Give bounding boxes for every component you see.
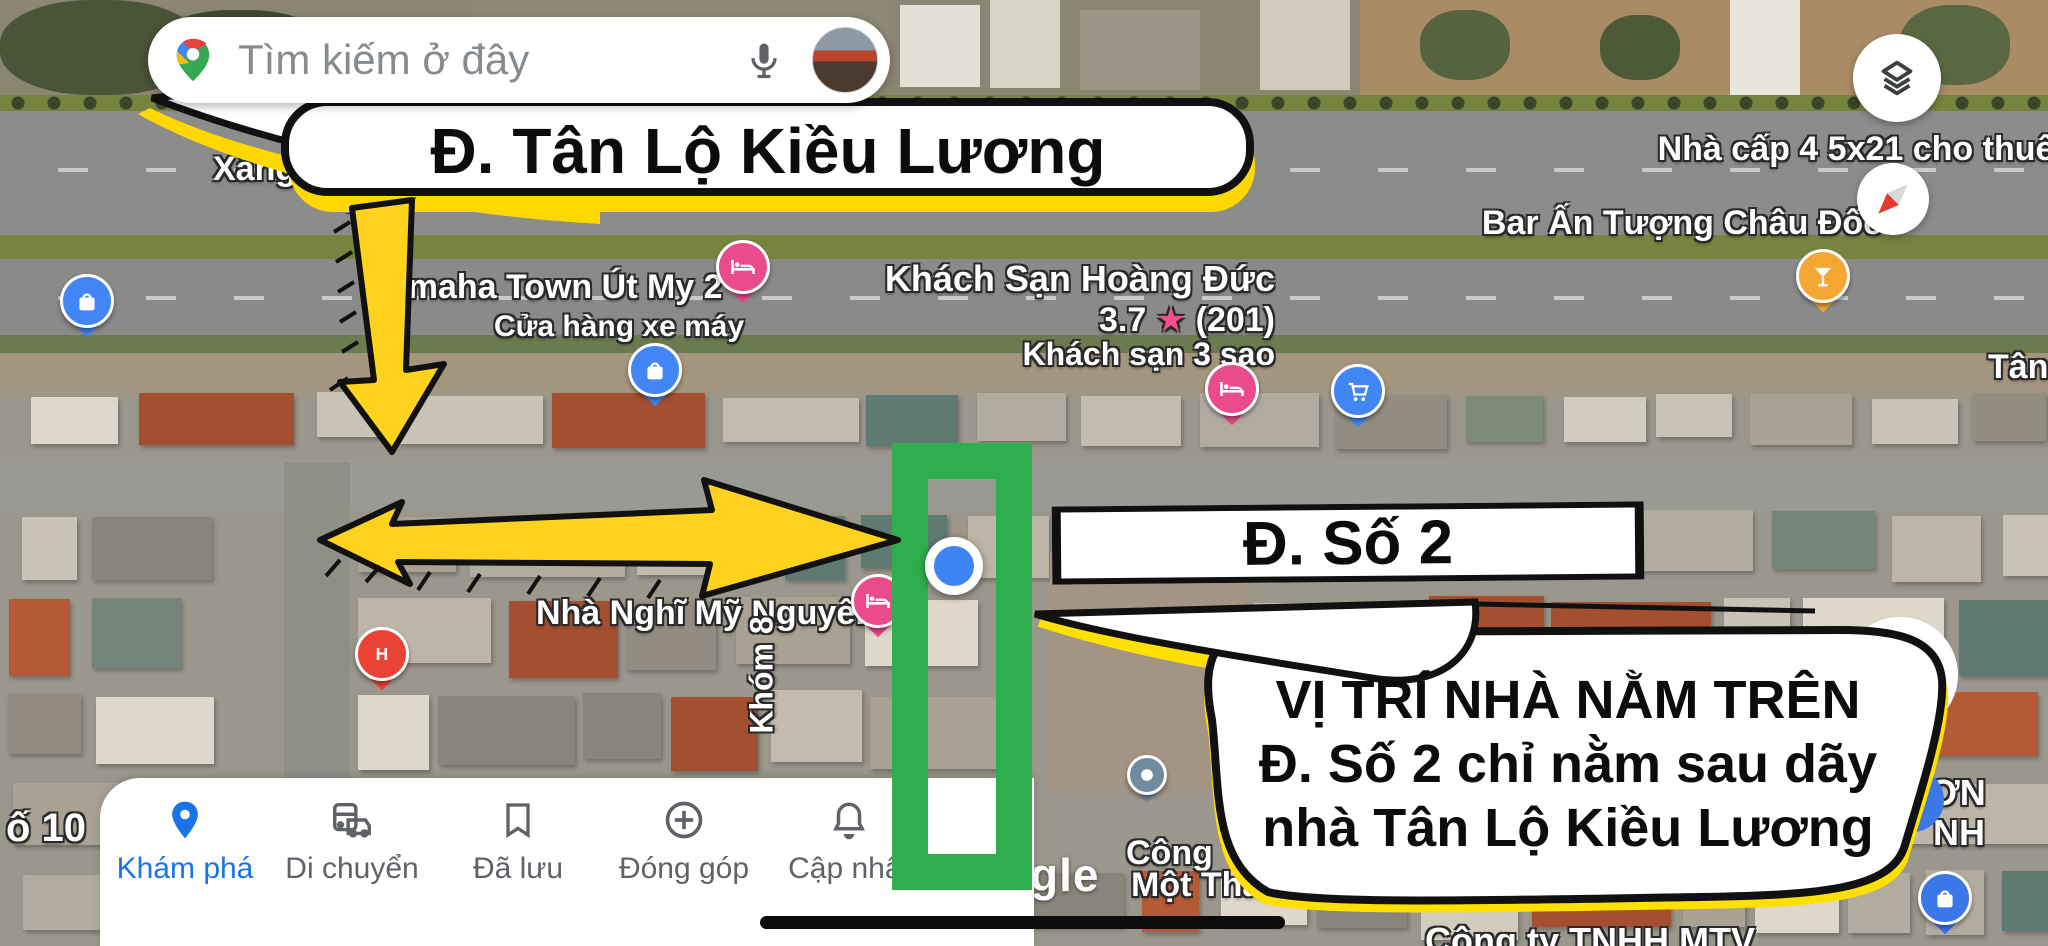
map-building [139, 393, 294, 445]
rating-value: 3.7 [1099, 301, 1146, 339]
shopping-bag-pin[interactable] [628, 343, 682, 409]
layers-icon [1874, 55, 1920, 101]
map-trees [1600, 15, 1680, 80]
map-building [1872, 399, 1958, 444]
map-building [96, 697, 214, 764]
map-label-house-rent[interactable]: Nhà cấp 4 5x21 cho thuê [1658, 130, 2048, 169]
map-building [1564, 397, 1646, 442]
shopping-bag-pin[interactable] [60, 274, 114, 340]
map-building [1892, 516, 1981, 582]
map-building [8, 694, 81, 754]
map-label-nha-fragment: Nhà [1148, 622, 1212, 661]
map-building [866, 395, 958, 446]
map-lot [1080, 10, 1200, 90]
map-lot [1730, 0, 1800, 95]
map-building [1466, 396, 1543, 442]
map-building [785, 516, 845, 580]
map-trees [1420, 10, 1510, 80]
hotel-bed-pin[interactable] [716, 240, 770, 306]
nav-item-contribute[interactable]: Đóng góp [609, 794, 759, 886]
map-building [1972, 393, 2046, 441]
nav-item-explore[interactable]: Khám phá [110, 794, 260, 886]
dot-icon [1428, 615, 1468, 655]
street-annotation-so-2: Đ. Số 2 [1052, 501, 1645, 584]
map-lot [990, 0, 1060, 88]
svg-text:H: H [376, 644, 389, 664]
map-building [470, 517, 625, 577]
highlight-rectangle [892, 443, 1032, 890]
map-building [1803, 598, 1944, 662]
map-building [1848, 873, 1910, 933]
generic-poi-pin[interactable] [1127, 755, 1167, 805]
hospital-h-pin[interactable]: H [355, 627, 409, 693]
H-icon: H [355, 627, 409, 681]
map-label-yamaha-sub: Cửa hàng xe máy [494, 310, 744, 344]
google-maps-logo-icon [170, 37, 216, 83]
map-building [1959, 600, 2048, 676]
map-building [1772, 511, 1875, 569]
map-label-khom-8: Khóm 8 [744, 616, 781, 733]
map-building [1750, 394, 1852, 445]
map-building [399, 396, 543, 444]
map-label-pha-fragment: Phá [1310, 620, 1372, 659]
bag-icon [60, 274, 114, 328]
map-label-nh-fragment: NH [1933, 812, 1985, 854]
bag-icon [1918, 871, 1972, 925]
shopping-cart-pin[interactable] [1331, 364, 1385, 430]
map-building [1901, 692, 2038, 756]
shopping-bag-pin[interactable] [1918, 871, 1972, 937]
compass-button[interactable] [1857, 163, 1929, 235]
layers-button[interactable] [1853, 34, 1941, 122]
map-building [22, 517, 77, 580]
map-building [1683, 869, 1745, 927]
map-building [637, 511, 773, 575]
cocktail-icon [1796, 249, 1850, 303]
add-circle-icon [609, 794, 759, 846]
map-building [92, 517, 212, 580]
map-building [438, 696, 575, 765]
nav-item-label: Đã lưu [443, 852, 593, 886]
map-label-yamaha[interactable]: Yamaha Town Út My 2 [368, 268, 723, 307]
map-building [2002, 871, 2048, 931]
bar-cocktail-pin[interactable] [1796, 249, 1850, 315]
explore-pin-icon [110, 794, 260, 846]
map-building [31, 397, 118, 444]
nav-item-commute[interactable]: Di chuyển [277, 794, 427, 886]
bed-icon [716, 240, 770, 294]
map-building [1081, 396, 1181, 446]
bed-icon [1205, 362, 1259, 416]
star-icon: ★ [1156, 301, 1186, 339]
map-building [1656, 394, 1732, 437]
generic-poi-pin[interactable] [1428, 615, 1468, 665]
microphone-icon[interactable] [742, 38, 786, 82]
nav-item-label: Đóng góp [609, 852, 759, 886]
compass-needle-icon [1858, 164, 1929, 235]
map-building [358, 695, 429, 770]
map-label-street-10: ố 10 [6, 806, 86, 851]
map-label-on-fragment: ƠN [1929, 772, 1986, 814]
map-lot [1260, 0, 1350, 90]
map-label-hotel-name[interactable]: Khách Sạn Hoàng Đức [885, 258, 1275, 300]
search-input[interactable]: Tìm kiếm ở đây [238, 36, 742, 84]
nav-item-label: Di chuyển [277, 852, 427, 886]
callout-line-1: VỊ TRÍ NHÀ NẰM TRÊN [1259, 668, 1877, 732]
map-label-bar[interactable]: Bar Ấn Tượng Châu Đốc [1482, 204, 1882, 243]
street-annotation-tan-lo-kieu-luong: Đ. Tân Lộ Kiều Lương [431, 114, 1106, 188]
review-count: (201) [1196, 301, 1275, 339]
map-building [358, 517, 456, 572]
map-building [317, 392, 378, 437]
map-building [771, 690, 862, 762]
nav-item-saved[interactable]: Đã lưu [443, 794, 593, 886]
map-label-company-mtv: Công ty TNHH MTV [1425, 920, 1755, 946]
map-building [723, 398, 859, 442]
map-building [9, 599, 70, 676]
map-label-hotel-rating[interactable]: 3.7 ★ (201) [1099, 300, 1275, 340]
location-callout-text: VỊ TRÍ NHÀ NẰM TRÊN Đ. Số 2 chỉ nằm sau … [1259, 668, 1877, 860]
callout-line-3: nhà Tân Lộ Kiều Lương [1259, 796, 1877, 860]
home-indicator[interactable] [760, 916, 1285, 929]
map-building [2003, 515, 2048, 576]
google-maps-screenshot: Xăng Dầu Ph Yamaha Town Út My 2 Cửa hàng… [0, 0, 2048, 946]
dot-icon [1127, 755, 1167, 795]
bookmark-icon [443, 794, 593, 846]
map-label-company-line2: Một Tha [1131, 866, 1261, 905]
search-bar[interactable]: Tìm kiếm ở đây [148, 17, 890, 103]
map-label-tan-lo: Tân L [1988, 348, 2048, 387]
bag-icon [628, 343, 682, 397]
map-label-gas-station[interactable]: Xăng Dầu Ph [213, 150, 423, 189]
hotel-bed-pin[interactable] [1205, 362, 1259, 428]
map-building [977, 393, 1066, 441]
map-building [1755, 870, 1839, 933]
map-building [92, 598, 181, 668]
map-building [1317, 872, 1407, 928]
commute-icon [277, 794, 427, 846]
map-lot [900, 5, 980, 87]
cart-icon [1331, 364, 1385, 418]
callout-line-2: Đ. Số 2 chỉ nằm sau dãy [1259, 732, 1877, 796]
current-location-dot[interactable] [925, 537, 983, 595]
account-avatar[interactable] [812, 27, 878, 93]
map-label-motel[interactable]: Nhà Nghĩ Mỹ Nguyên [536, 594, 876, 633]
map-building [1532, 873, 1671, 927]
map-building [583, 693, 661, 759]
nav-item-label: Khám phá [110, 852, 260, 886]
map-building [1724, 598, 1790, 672]
